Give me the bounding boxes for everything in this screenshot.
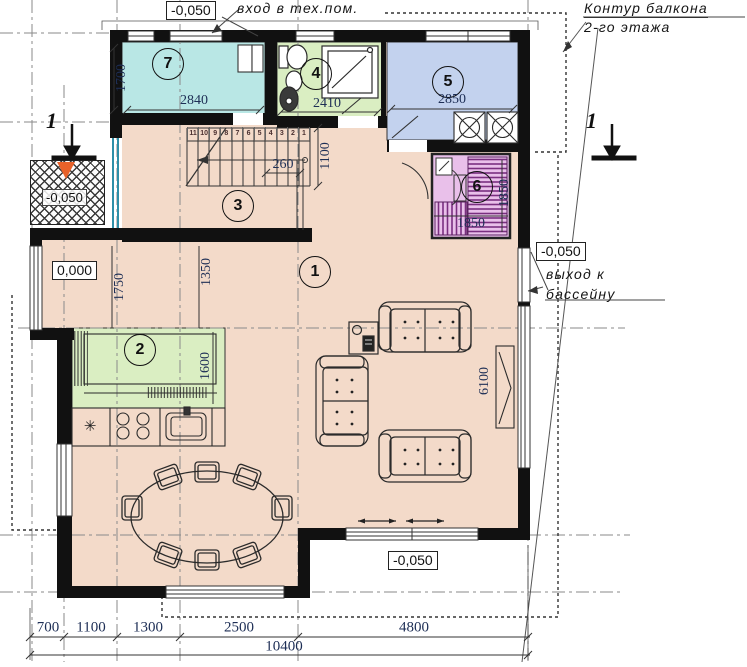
dim-sauna-width: 1850 bbox=[457, 216, 485, 232]
room-number-1: 1 bbox=[299, 256, 331, 288]
cabinet bbox=[238, 45, 263, 72]
dim-bottom-4800: 4800 bbox=[399, 620, 429, 637]
elevation-bottom-label: -0,050 bbox=[388, 551, 438, 570]
dim-room5-width: 2850 bbox=[438, 92, 466, 108]
dim-bottom-700: 700 bbox=[37, 620, 60, 637]
dim-sauna-depth: 1850 bbox=[497, 179, 513, 207]
dim-bottom-1300: 1300 bbox=[133, 620, 163, 637]
dim-stair-run: 260 bbox=[273, 157, 294, 173]
balcony-contour-label-1: Контур балкона bbox=[584, 0, 708, 18]
dim-total: 10400 bbox=[265, 639, 303, 656]
tread-number: 4 bbox=[265, 127, 276, 140]
balcony-contour-label-2: 2-го этажа bbox=[584, 19, 670, 35]
tread-number: 11 bbox=[187, 127, 198, 140]
section-number-left: 1 bbox=[46, 108, 57, 134]
tech-room-entry-label: вход в тех.пом. bbox=[237, 0, 358, 16]
dim-hall-depth: 1750 bbox=[112, 273, 128, 301]
tread-number: 8 bbox=[220, 127, 231, 140]
plan-drawing bbox=[0, 0, 747, 667]
tread-number: 1 bbox=[298, 127, 310, 140]
room-number-6: 6 bbox=[461, 171, 493, 203]
dim-hall-width: 1350 bbox=[199, 258, 215, 286]
entrance-arrow-icon bbox=[57, 162, 75, 179]
tread-number: 10 bbox=[198, 127, 209, 140]
section-mark-right bbox=[592, 124, 636, 160]
dim-room4-width: 2410 bbox=[313, 96, 341, 112]
tread-number: 7 bbox=[231, 127, 242, 140]
pool-exit-label-2: бассейну bbox=[546, 286, 616, 302]
tread-number: 5 bbox=[254, 127, 265, 140]
room-number-2: 2 bbox=[124, 334, 156, 366]
overhang-line bbox=[102, 21, 538, 30]
stair-tread-numbers: 11 10 9 8 7 6 5 4 3 2 1 bbox=[187, 127, 310, 140]
pool-exit-label-1: выход к bbox=[546, 266, 605, 282]
dim-room7-depth: 1700 bbox=[114, 64, 130, 92]
section-number-right: 1 bbox=[586, 108, 597, 134]
porch-elevation-label: -0,050 bbox=[42, 189, 87, 206]
zero-elevation-label: 0,000 bbox=[52, 261, 97, 280]
dim-kitchen-depth: 1600 bbox=[198, 352, 214, 380]
room-number-3: 3 bbox=[222, 190, 254, 222]
balcony-leader bbox=[522, 17, 745, 662]
dim-bottom-1100: 1100 bbox=[76, 620, 105, 637]
elevation-right-label: -0,050 bbox=[536, 242, 586, 261]
room-number-7: 7 bbox=[152, 48, 184, 80]
dim-window-width: 6100 bbox=[477, 367, 493, 395]
fridge-symbol-icon: ✳ bbox=[84, 417, 97, 435]
dim-room7-width: 2840 bbox=[180, 93, 208, 109]
room-number-4: 4 bbox=[300, 58, 332, 90]
dim-stair-width: 1100 bbox=[318, 142, 334, 169]
elevation-top-label: -0,050 bbox=[166, 1, 216, 20]
tread-number: 2 bbox=[287, 127, 298, 140]
tread-number: 6 bbox=[242, 127, 253, 140]
tread-number: 9 bbox=[209, 127, 220, 140]
dim-bottom-2500: 2500 bbox=[224, 620, 254, 637]
floor-plan: 11 10 9 8 7 6 5 4 3 2 1 -0,050 вход в те… bbox=[0, 0, 747, 667]
tread-number: 3 bbox=[276, 127, 287, 140]
